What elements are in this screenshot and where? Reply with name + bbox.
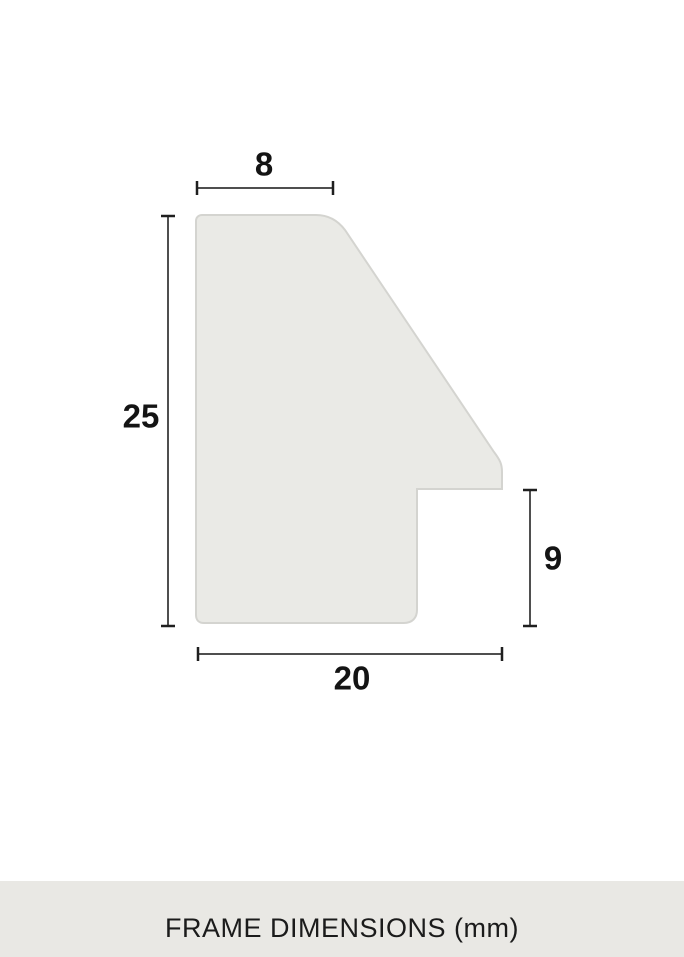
dimension-label-overall-height: 25 <box>123 400 160 433</box>
frame-dimensions-screenshot: 8 25 9 20 FRAME DIMENSIONS (mm) <box>0 0 684 957</box>
caption-title: FRAME DIMENSIONS (mm) <box>165 913 519 944</box>
dimension-label-top-width: 8 <box>255 148 273 181</box>
dimension-rabbet-height <box>523 490 537 626</box>
profile-diagram-svg <box>0 0 684 881</box>
moulding-profile-shape <box>196 215 502 623</box>
dimension-top-width <box>197 181 333 195</box>
dimension-label-rabbet-height: 9 <box>544 542 562 575</box>
dimension-overall-height <box>161 216 175 626</box>
profile-diagram: 8 25 9 20 <box>0 0 684 881</box>
dimension-label-bottom-width: 20 <box>334 662 371 695</box>
caption-bar: FRAME DIMENSIONS (mm) <box>0 881 684 957</box>
